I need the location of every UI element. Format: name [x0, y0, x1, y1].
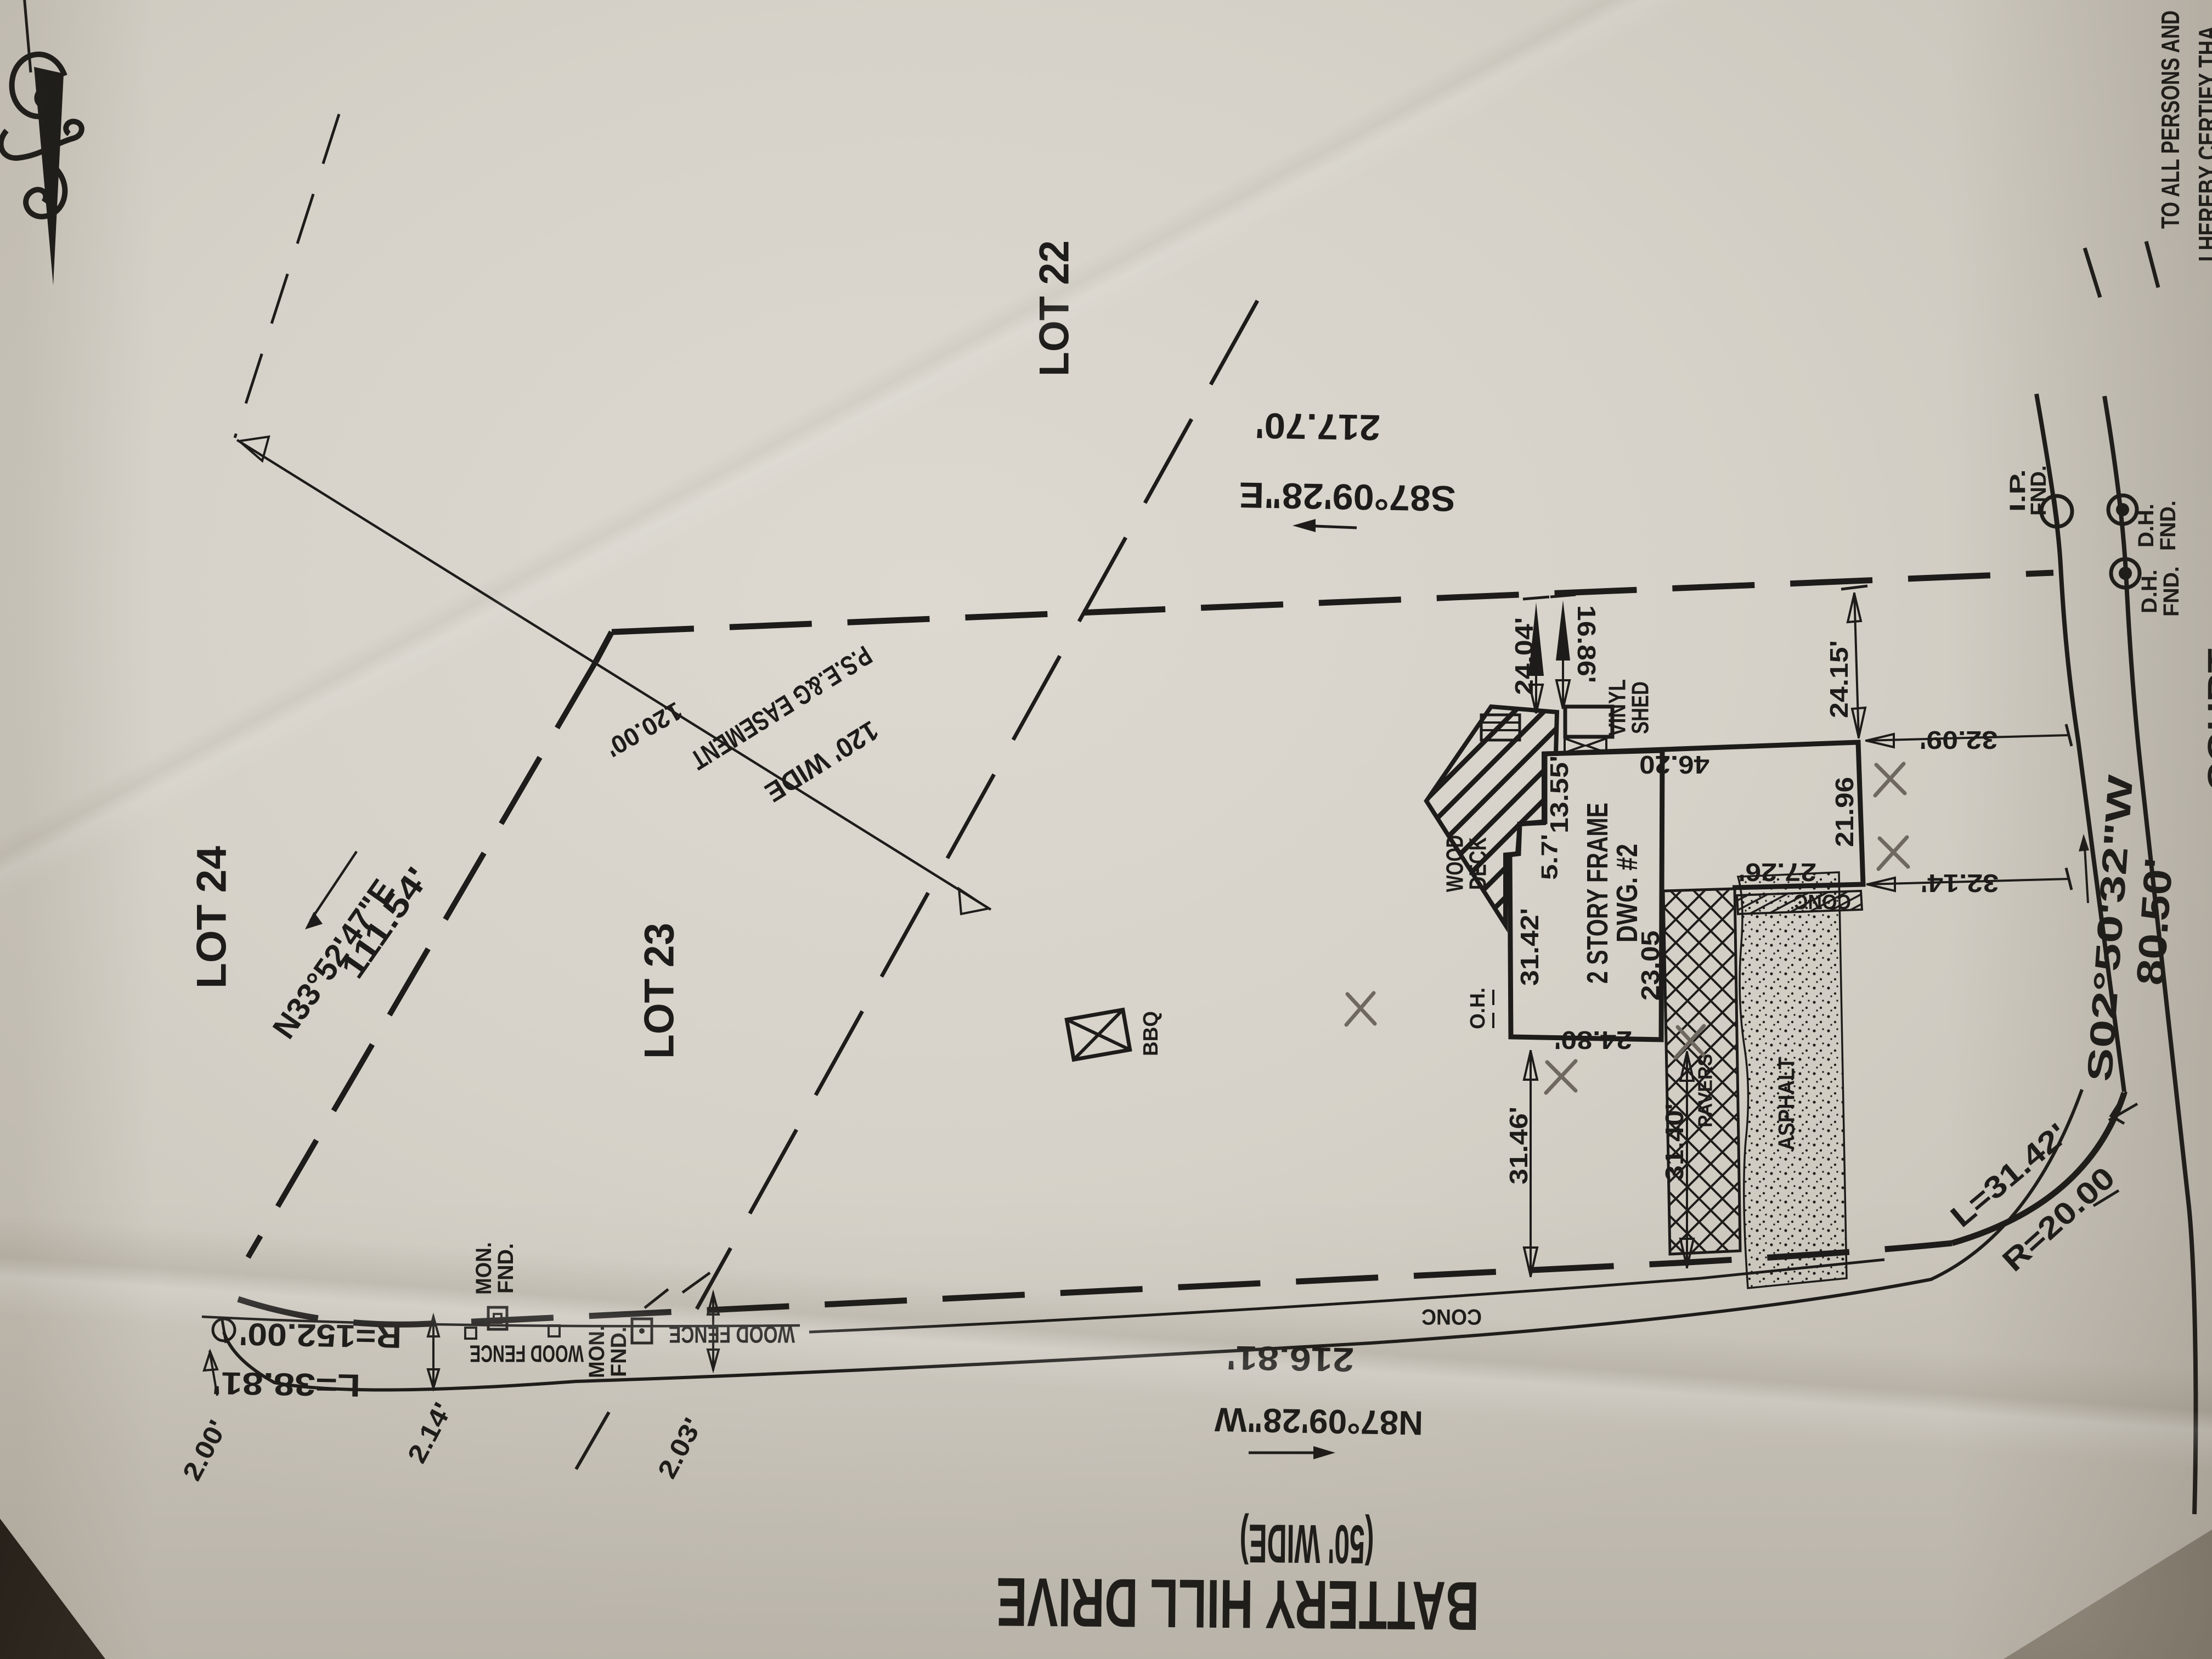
plat-drawing: LOT 22 LOT 23 LOT 24 S87°09'28"E 217.70'… — [0, 0, 2212, 1659]
mon1-found-label: MON. — [472, 1242, 496, 1295]
rear-distance-label: 217.70' — [1255, 405, 1380, 448]
drill-hole-dot — [2119, 567, 2132, 580]
dim-27-26: 27.26' — [1739, 858, 1816, 887]
structures-linework — [1066, 707, 1862, 1288]
rear-bearing-arrowhead — [1293, 519, 1316, 532]
street-width-label: (50' WIDE) — [1239, 1513, 1374, 1575]
easement-width-arrow — [237, 440, 991, 910]
fence-post — [549, 1325, 560, 1336]
dim-32-09: 32.09' — [1920, 726, 1997, 754]
side-street-partial-label: COURT — [2202, 648, 2212, 791]
front-distance-label: 216.81' — [1226, 1338, 1354, 1378]
tick-mark — [645, 1289, 668, 1308]
dim-31-46: 31.46' — [1504, 1107, 1533, 1184]
easement-arrowhead-downright — [959, 889, 989, 914]
dim-24-80: 24.80' — [1554, 1026, 1632, 1054]
north-arrow-icon — [1, 0, 82, 285]
right-distance-label: 80.50' — [2129, 856, 2181, 986]
dim-32-14: 32.14' — [1921, 869, 1999, 898]
frontage-curve-radius-label: R=152.00' — [239, 1316, 402, 1355]
dim-tbars-rear — [1523, 595, 1576, 599]
pencil-x — [1346, 993, 1375, 1025]
frontage-curve-length-label: L=38.81' — [212, 1365, 360, 1403]
tick-mark — [576, 1412, 609, 1469]
fence-post — [465, 1328, 476, 1339]
left-bearing-arrowhead — [305, 912, 323, 929]
boundary-linework — [235, 114, 2196, 1514]
dh1-found-label2: FND. — [2156, 500, 2180, 551]
dim-24-15: 24.15' — [1825, 640, 1853, 718]
pencil-x — [1875, 764, 1905, 795]
dim-31-42: 31.42' — [1515, 908, 1544, 986]
conc-patio-label: CONC — [1794, 890, 1851, 913]
rear-boundary-dashed — [612, 573, 2053, 632]
bbq-label: BBQ — [1139, 1011, 1163, 1056]
dim-16-86: 16.86' — [1572, 605, 1601, 683]
corner-pipe-slash — [222, 1317, 226, 1343]
overhang-label: O.H. — [1466, 988, 1489, 1029]
easement-segment-label: 120.00' — [601, 696, 687, 763]
lot24-line-extension-dashed — [235, 114, 339, 438]
ip-found-label2: FND. — [2027, 465, 2051, 516]
front-bearing-label: N87°09'28"W — [1214, 1400, 1424, 1442]
side-street-top-dash — [2146, 241, 2158, 287]
lot-22-label: LOT 22 — [1031, 240, 1078, 376]
pencil-x — [1546, 1061, 1576, 1093]
dim-2-00: 2.00' — [177, 1415, 233, 1485]
dh1-found-label: D.H. — [2134, 504, 2158, 548]
drill-hole-dot — [2116, 503, 2129, 516]
asphalt-label: ASPHALT — [1774, 1057, 1799, 1150]
dim-21-96: 21.96 — [1830, 777, 1859, 847]
certification-line1: TO ALL PERSONS AND — [2156, 10, 2185, 229]
rear-boundary-corner — [596, 632, 612, 662]
dh2-found-label: D.H. — [2137, 569, 2162, 613]
street-name-label: BATTERY HILL DRIVE — [996, 1564, 1479, 1645]
west-boundary-dashed — [248, 662, 596, 1257]
lot-23-label: LOT 23 — [636, 923, 683, 1059]
easement-width-label: 120' WIDE — [760, 715, 884, 808]
dh2-found-label2: FND. — [2159, 566, 2183, 617]
dim-24-04: 24.04' — [1510, 617, 1538, 695]
dim-2-14: 2.14' — [402, 1398, 458, 1468]
dim-2-03: 2.03' — [652, 1413, 708, 1483]
pencil-x — [1878, 837, 1908, 869]
right-bearing-arrowhead — [2079, 834, 2089, 851]
pavers-label: PAVERS — [1694, 1054, 1717, 1127]
mon2-found-label: MON. — [585, 1325, 609, 1378]
certification-line2: I HEREBY CERTIFY THA — [2193, 26, 2212, 262]
dim-solid-arrow — [1556, 600, 1570, 661]
plat-labels: LOT 22 LOT 23 LOT 24 S87°09'28"E 217.70'… — [177, 10, 2212, 1645]
bbq-symbol — [1066, 1010, 1130, 1060]
lot-24-label: LOT 24 — [189, 846, 235, 989]
dim-5-7: 5.7' — [1537, 834, 1562, 880]
dwelling-label-line1: 2 STORY FRAME — [1581, 803, 1614, 984]
wood-fence-label-left: WOOD FENCE — [470, 1340, 584, 1367]
dim-31-40: 31.40' — [1660, 1103, 1689, 1181]
shed-label-line2: SHED — [1627, 681, 1654, 734]
dwelling-label-line2: DWG. #2 — [1611, 844, 1644, 943]
monument-dot — [639, 1328, 645, 1334]
deck-label-line2: DECK — [1465, 837, 1492, 890]
mon2-found-label2: FND. — [607, 1327, 631, 1377]
dim-13-55: 13.55' — [1545, 755, 1573, 833]
right-line-top-dash — [2085, 248, 2100, 297]
wood-fence-label-right: WOOD FENCE — [669, 1321, 795, 1348]
dim-46-20: 46.20 — [1639, 751, 1709, 779]
mon1-found-label2: FND. — [494, 1243, 518, 1294]
photo-of-survey-plat: LOT 22 LOT 23 LOT 24 S87°09'28"E 217.70'… — [0, 0, 2212, 1659]
front-bearing-arrowhead — [1313, 1446, 1335, 1459]
dim-23-05: 23.05 — [1636, 930, 1664, 1001]
rear-bearing-label: S87°09'28"E — [1239, 475, 1456, 520]
conc-sidewalk-label: CONC — [1421, 1305, 1482, 1329]
